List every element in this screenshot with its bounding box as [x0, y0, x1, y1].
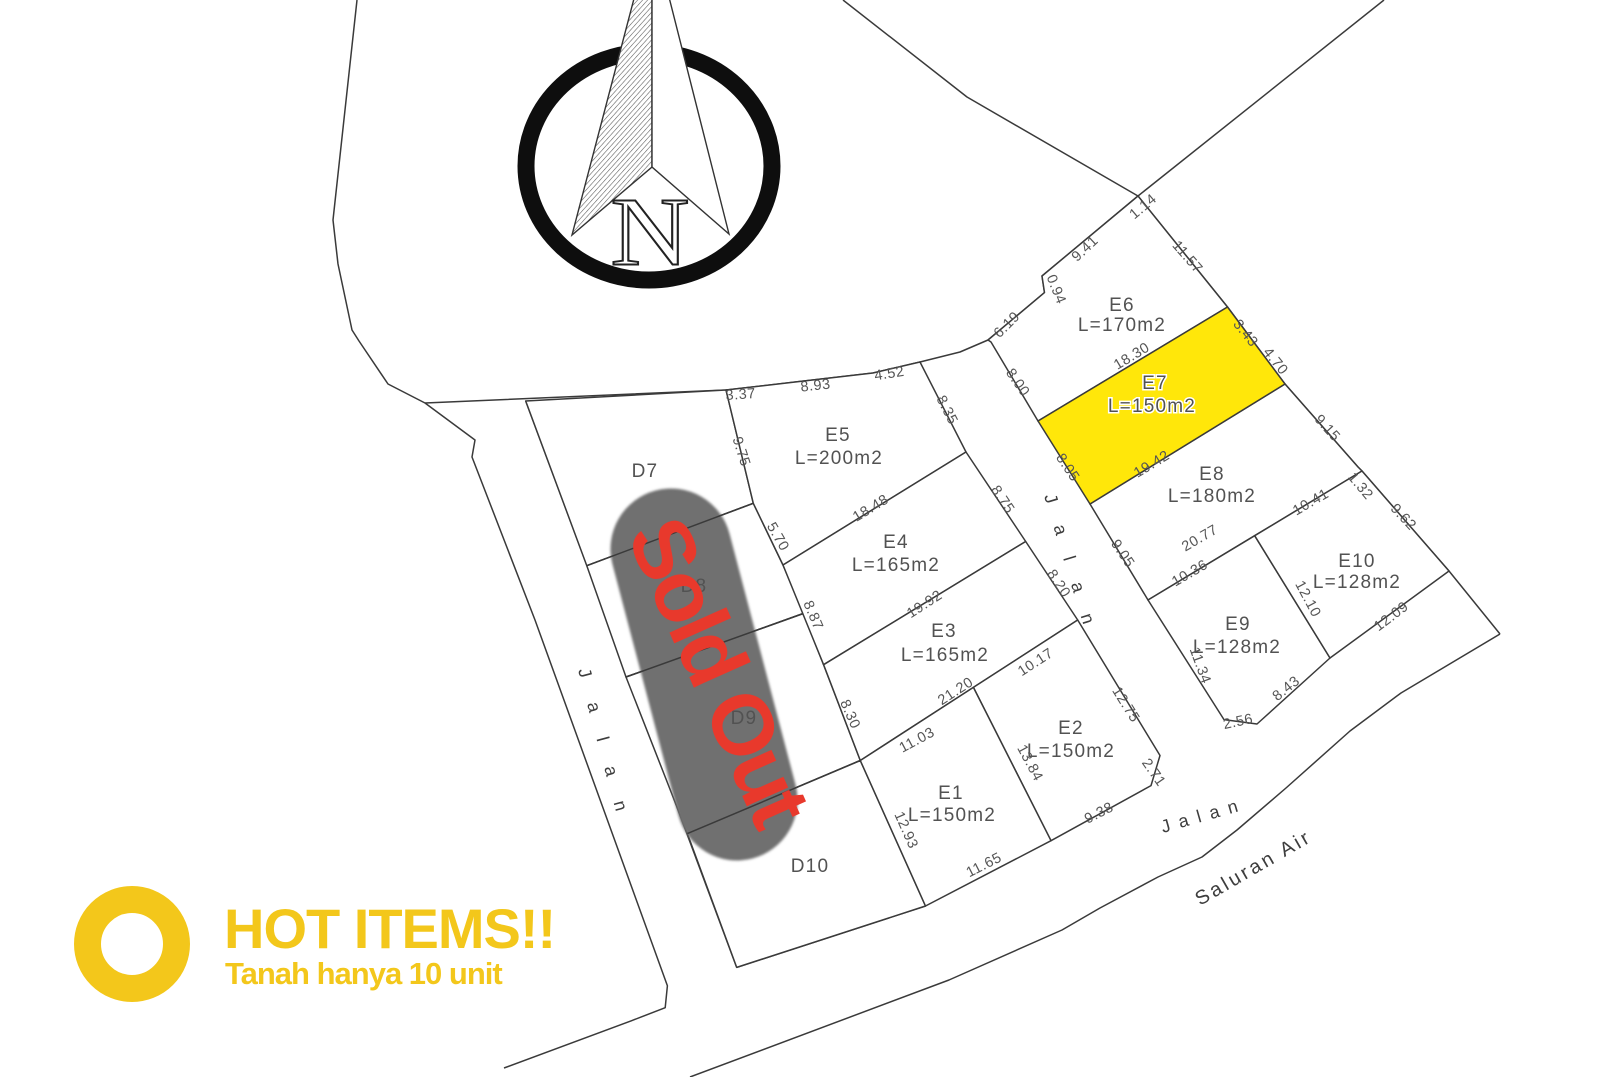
svg-text:E10: E10: [1338, 551, 1375, 572]
svg-text:L=150m2: L=150m2: [1108, 396, 1196, 417]
svg-text:L=128m2: L=128m2: [1313, 572, 1401, 593]
svg-text:L=165m2: L=165m2: [852, 555, 940, 576]
svg-text:E4: E4: [883, 532, 909, 553]
svg-text:N: N: [610, 179, 689, 286]
svg-text:L=200m2: L=200m2: [795, 448, 883, 469]
svg-text:E9: E9: [1225, 614, 1251, 635]
svg-text:3.37: 3.37: [725, 386, 756, 404]
svg-text:D7: D7: [632, 461, 659, 482]
svg-text:L=170m2: L=170m2: [1078, 315, 1166, 336]
svg-text:E2: E2: [1058, 718, 1084, 739]
svg-text:L=150m2: L=150m2: [1027, 741, 1115, 762]
svg-text:L=128m2: L=128m2: [1193, 637, 1281, 658]
svg-text:E1: E1: [938, 783, 964, 804]
svg-text:D10: D10: [791, 856, 829, 877]
svg-text:Tanah hanya 10 unit: Tanah hanya 10 unit: [225, 956, 502, 991]
svg-text:E6: E6: [1109, 295, 1135, 316]
svg-text:L=165m2: L=165m2: [901, 645, 989, 666]
svg-text:L=180m2: L=180m2: [1168, 486, 1256, 507]
svg-text:E8: E8: [1199, 464, 1225, 485]
svg-text:8.93: 8.93: [800, 376, 832, 395]
svg-text:E3: E3: [931, 621, 957, 642]
svg-text:HOT ITEMS!!: HOT ITEMS!!: [224, 897, 555, 960]
svg-text:E5: E5: [825, 425, 851, 446]
svg-text:L=150m2: L=150m2: [908, 805, 996, 826]
svg-text:E7: E7: [1142, 373, 1168, 394]
